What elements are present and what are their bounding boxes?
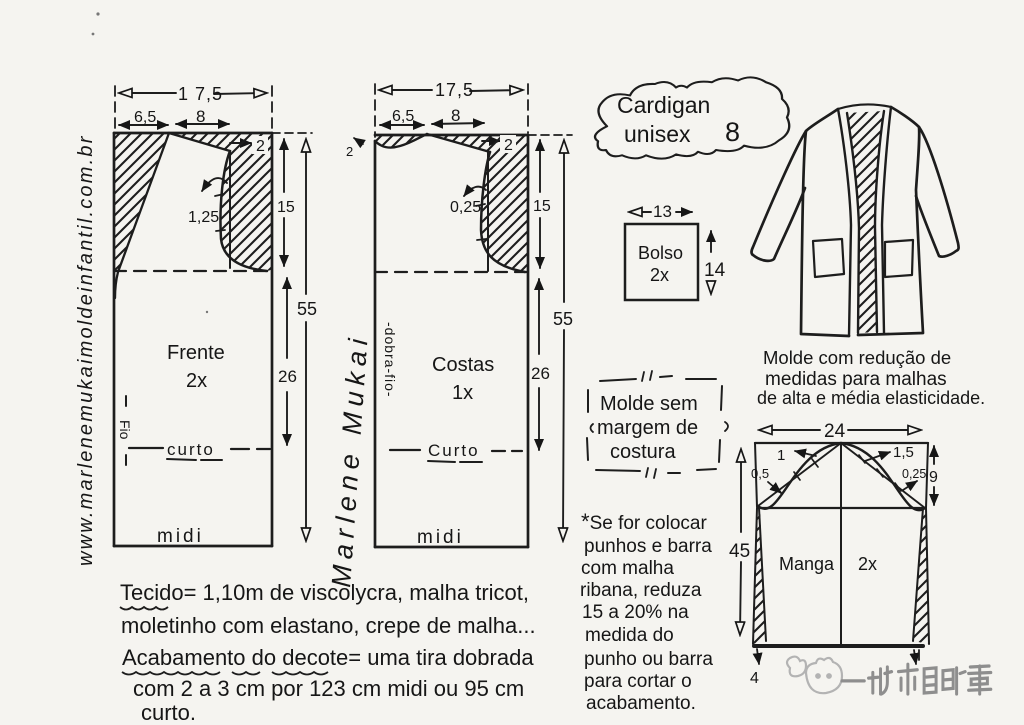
svg-text:para cortar o: para cortar o: [584, 671, 692, 692]
svg-text:costura: costura: [610, 441, 676, 463]
svg-text:com malha: com malha: [581, 558, 674, 579]
svg-text:1x: 1x: [452, 382, 473, 404]
svg-text:midi: midi: [417, 527, 464, 548]
svg-text:1,5: 1,5: [893, 444, 914, 461]
svg-text:Frente: Frente: [167, 342, 225, 364]
svg-text:55: 55: [553, 309, 573, 329]
svg-text:-dobra-fio-: -dobra-fio-: [382, 322, 398, 398]
svg-text:midi: midi: [157, 526, 204, 547]
svg-text:55: 55: [297, 299, 317, 319]
svg-text:ribana, reduza: ribana, reduza: [580, 580, 702, 601]
svg-text:Bolso: Bolso: [638, 243, 683, 263]
svg-text:Manga: Manga: [779, 554, 835, 574]
svg-text:medida do: medida do: [585, 625, 674, 646]
svg-text:17,5: 17,5: [435, 80, 474, 100]
svg-text:unisex: unisex: [624, 121, 691, 147]
svg-text:com 2 a 3 cm por 123 cm midi: com 2 a 3 cm por 123 cm midi ou 95 cm: [133, 676, 524, 701]
svg-text:15: 15: [533, 198, 551, 215]
svg-text:1,25: 1,25: [188, 209, 219, 226]
svg-text:45: 45: [729, 541, 750, 562]
svg-text:1: 1: [777, 447, 785, 464]
svg-text:15 a 20% na: 15 a 20% na: [582, 602, 689, 623]
svg-text:Cardigan: Cardigan: [617, 92, 710, 118]
svg-text:0,5: 0,5: [751, 466, 769, 481]
svg-text:punhos e barra: punhos e barra: [584, 536, 712, 557]
svg-text:0,25: 0,25: [902, 467, 926, 481]
svg-text:2: 2: [346, 144, 353, 159]
svg-text:de alta e média elasticidade.: de alta e média elasticidade.: [757, 388, 985, 408]
svg-text:14: 14: [704, 260, 726, 281]
svg-text:2x: 2x: [650, 265, 669, 285]
svg-text:15: 15: [277, 199, 295, 216]
svg-text:6,5: 6,5: [392, 108, 414, 125]
svg-text:0,25: 0,25: [450, 199, 481, 216]
svg-text:Fio: Fio: [117, 420, 133, 440]
svg-text:24: 24: [824, 421, 846, 442]
svg-text:punho ou barra: punho ou barra: [584, 649, 713, 670]
svg-text:margem de: margem de: [597, 417, 698, 439]
svg-text:Molde sem: Molde sem: [600, 393, 698, 415]
svg-text:2x: 2x: [858, 554, 877, 574]
svg-text:curto.: curto.: [141, 700, 196, 725]
svg-text:8: 8: [196, 107, 205, 126]
svg-text:www.marlenemukaimoldeinfantil.: www.marlenemukaimoldeinfantil.com.br: [75, 134, 97, 566]
svg-text:2x: 2x: [186, 370, 207, 392]
svg-text:Tecido= 1,10m de viscolycra,: Tecido= 1,10m de viscolycra, malha trico…: [120, 580, 529, 605]
svg-text:Costas: Costas: [432, 354, 494, 376]
svg-text:Curto: Curto: [428, 441, 480, 460]
svg-text:8: 8: [725, 117, 740, 147]
svg-text:2: 2: [504, 137, 513, 154]
svg-text:*Se for colocar: *Se for colocar: [581, 509, 707, 534]
svg-text:curto: curto: [167, 440, 215, 459]
svg-text:26: 26: [278, 367, 297, 386]
svg-text:13: 13: [653, 202, 672, 221]
svg-text:Molde com redução de: Molde com redução de: [763, 347, 951, 368]
svg-text:8: 8: [451, 106, 460, 125]
svg-text:2: 2: [256, 138, 265, 155]
svg-text:26: 26: [531, 364, 550, 383]
svg-text:Acabamento do decote= uma tira: Acabamento do decote= uma tira dobrada: [122, 645, 534, 670]
svg-text:moletinho com elastano, crepe: moletinho com elastano, crepe de malha..…: [121, 613, 536, 638]
svg-text:4: 4: [750, 670, 759, 687]
svg-text:acabamento.: acabamento.: [586, 693, 696, 714]
svg-text:medidas para malhas: medidas para malhas: [765, 369, 947, 390]
svg-text:6,5: 6,5: [134, 109, 156, 126]
svg-text:9: 9: [929, 469, 938, 486]
svg-text:1 7,5: 1 7,5: [178, 84, 223, 104]
